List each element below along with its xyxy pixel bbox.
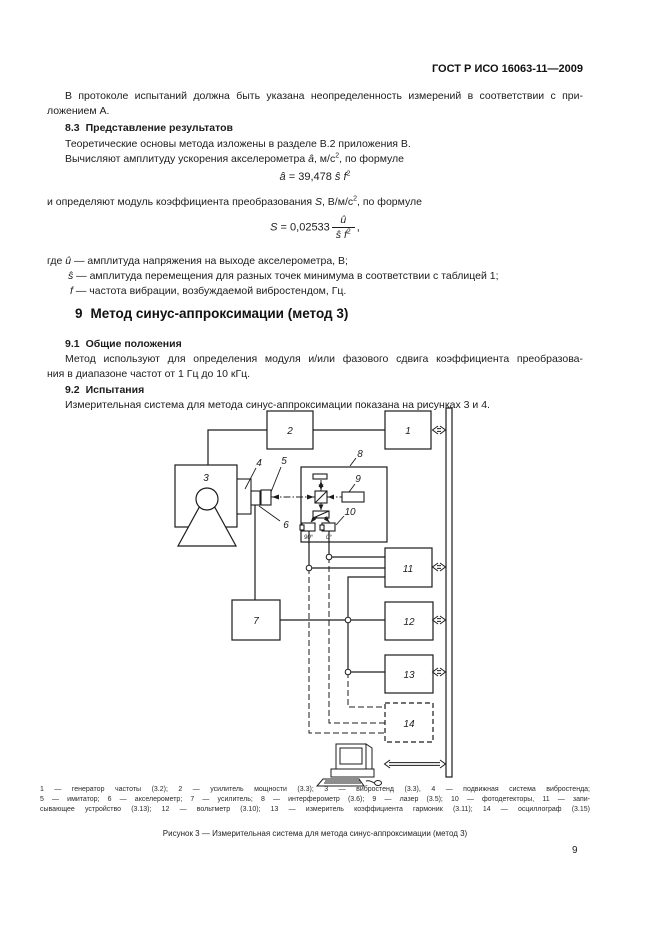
double-arrow-icon xyxy=(385,760,446,768)
laser-beams xyxy=(271,480,342,523)
label-2: 2 xyxy=(286,426,293,437)
label-14: 14 xyxy=(403,719,415,730)
photodetector-0-nub xyxy=(320,525,324,530)
double-arrow-icon xyxy=(433,426,446,434)
accelerometer-assembly xyxy=(237,479,271,514)
label-1: 1 xyxy=(405,426,411,437)
figure-key-line: сывающее устройство (3.13); 12 — вольтме… xyxy=(40,805,590,815)
label-8: 8 xyxy=(357,449,363,460)
bus-double-arrows xyxy=(385,426,446,768)
double-arrow-icon xyxy=(433,668,446,676)
accelerometer xyxy=(261,490,271,505)
label-11: 11 xyxy=(403,564,413,575)
signal-lines xyxy=(208,430,385,672)
label-13: 13 xyxy=(403,670,415,681)
label-5: 5 xyxy=(281,456,287,467)
mirror-icon xyxy=(313,474,327,479)
figure-key-line: 1 — генератор частоты (3.2); 2 — усилите… xyxy=(40,785,590,795)
photodetector-90-nub xyxy=(300,525,304,530)
shaker-internals xyxy=(178,488,236,546)
label-10: 10 xyxy=(344,507,356,518)
label-90deg: 90° xyxy=(304,535,314,541)
double-arrow-icon xyxy=(433,616,446,624)
laser xyxy=(342,492,364,502)
label-3: 3 xyxy=(203,473,209,484)
moving-system xyxy=(237,479,251,514)
label-12: 12 xyxy=(403,617,415,628)
figure-caption: Рисунок 3 — Измерительная система для ме… xyxy=(47,829,583,838)
double-arrow-icon xyxy=(433,563,446,571)
bus-bar xyxy=(446,408,452,777)
label-6: 6 xyxy=(283,520,289,531)
figure-key-line: 5 — имитатор; 6 — акселерометр; 7 — усил… xyxy=(40,795,590,805)
label-7: 7 xyxy=(253,616,259,627)
imitator xyxy=(251,491,260,505)
dashed-lines xyxy=(309,557,385,733)
label-4: 4 xyxy=(256,458,262,469)
label-0deg: 0° xyxy=(326,535,332,541)
degree-labels: 90° 0° xyxy=(304,535,332,541)
label-9: 9 xyxy=(355,474,361,485)
computer-icon xyxy=(317,744,382,786)
document-page: ГОСТ Р ИСО 16063-11—2009 В протоколе исп… xyxy=(0,0,661,936)
page-number: 9 xyxy=(572,845,578,856)
